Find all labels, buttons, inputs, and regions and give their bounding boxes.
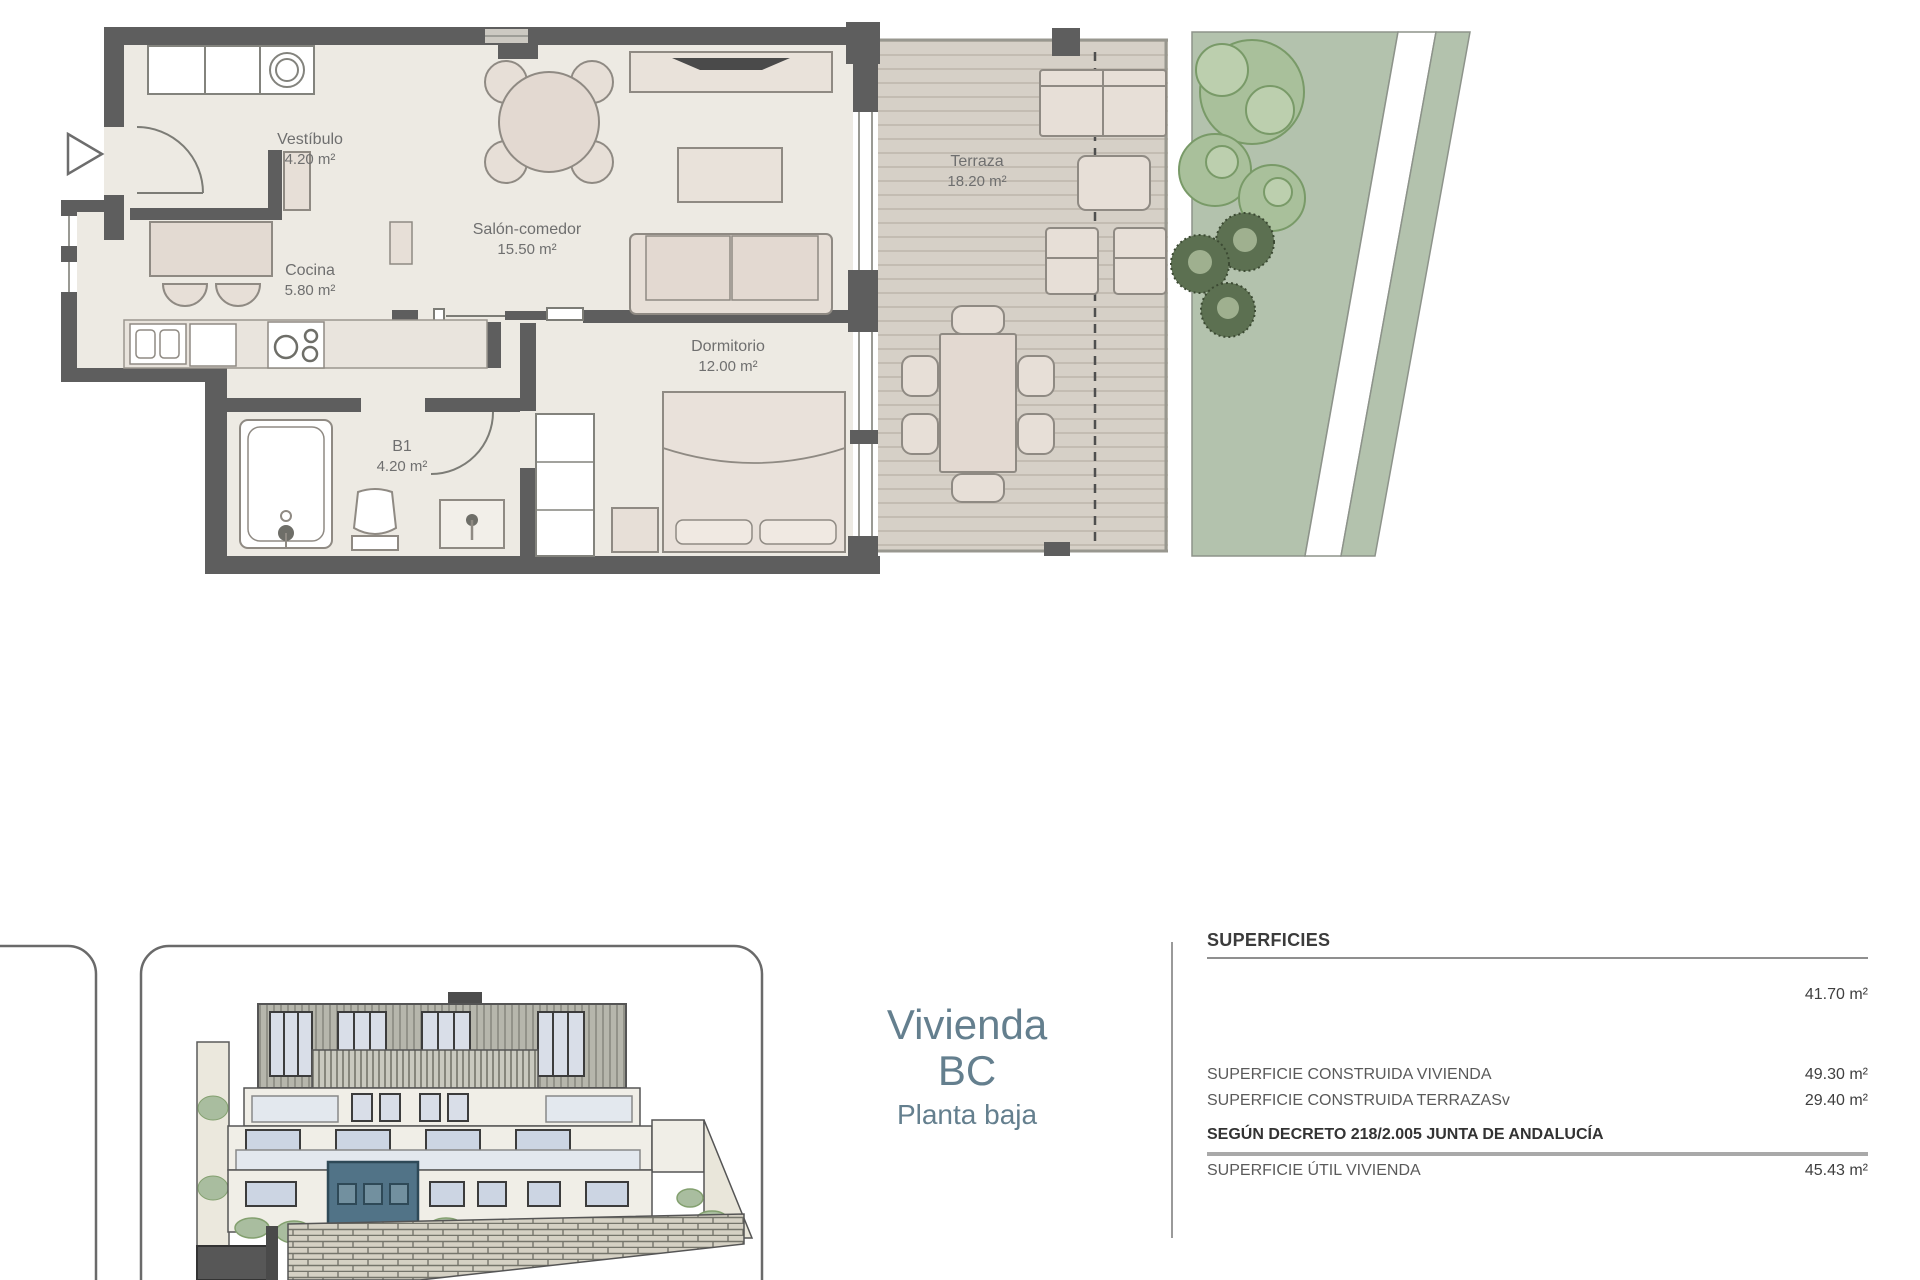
surface-section-rule [1207, 1152, 1868, 1156]
unit-subtitle: Planta baja [887, 1098, 1047, 1132]
toilet-tank [352, 536, 398, 550]
surface-table-rule [1207, 957, 1868, 959]
bedroom-furniture [536, 392, 845, 556]
kitchen-appliance [190, 324, 236, 366]
roof-terrace-railing [312, 1050, 538, 1088]
vestibule-closet [148, 46, 314, 94]
surface-section-header: SEGÚN DECRETO 218/2.005 JUNTA DE ANDALUC… [1207, 1126, 1868, 1144]
garden-strip [1171, 32, 1470, 556]
room-label-b1: B1 4.20 m² [377, 437, 428, 477]
room-label-cocina: Cocina 5.80 m² [285, 261, 336, 301]
nightstand [612, 508, 658, 552]
garage-door [197, 1246, 267, 1280]
room-label-salon-comedor: Salón-comedor 15.50 m² [473, 220, 582, 260]
bed [663, 392, 845, 552]
terrace-pier [1052, 28, 1080, 56]
sliding-door-leaf [547, 308, 583, 320]
unit-title-line2: BC [887, 1048, 1047, 1094]
round-table-group [485, 61, 613, 183]
room-label-vestibulo: Vestíbulo 4.20 m² [277, 130, 343, 170]
coffee-table [678, 148, 782, 202]
elevation-card-left [0, 946, 96, 1280]
floorplan-sheet: { "floor_plan": { "rooms": [ {"name": "V… [0, 0, 1920, 1280]
highlighted-unit [328, 1162, 418, 1226]
elevation-cards [0, 946, 762, 1280]
toilet-bowl [354, 489, 396, 534]
entrance-arrow-icon [68, 134, 102, 174]
balcony-railing [236, 1150, 640, 1170]
unit-card: Vivienda BC Planta baja [887, 1002, 1047, 1132]
room-label-dormitorio: Dormitorio 12.00 m² [691, 337, 765, 377]
unit-title-line1: Vivienda [887, 1002, 1047, 1048]
wardrobe [536, 414, 594, 556]
surface-table-header: SUPERFICIES [1207, 930, 1868, 951]
sofa [630, 234, 832, 314]
apartment [61, 22, 880, 574]
sideboard [390, 222, 412, 264]
terrace-pier [1044, 542, 1070, 556]
surface-table: SUPERFICIES 41.70 m² SUPERFICIE CONSTRUI… [1207, 930, 1868, 959]
table-divider-line [1171, 942, 1173, 1238]
room-label-terraza: Terraza 18.20 m² [947, 152, 1006, 192]
kitchen-table [150, 222, 272, 276]
